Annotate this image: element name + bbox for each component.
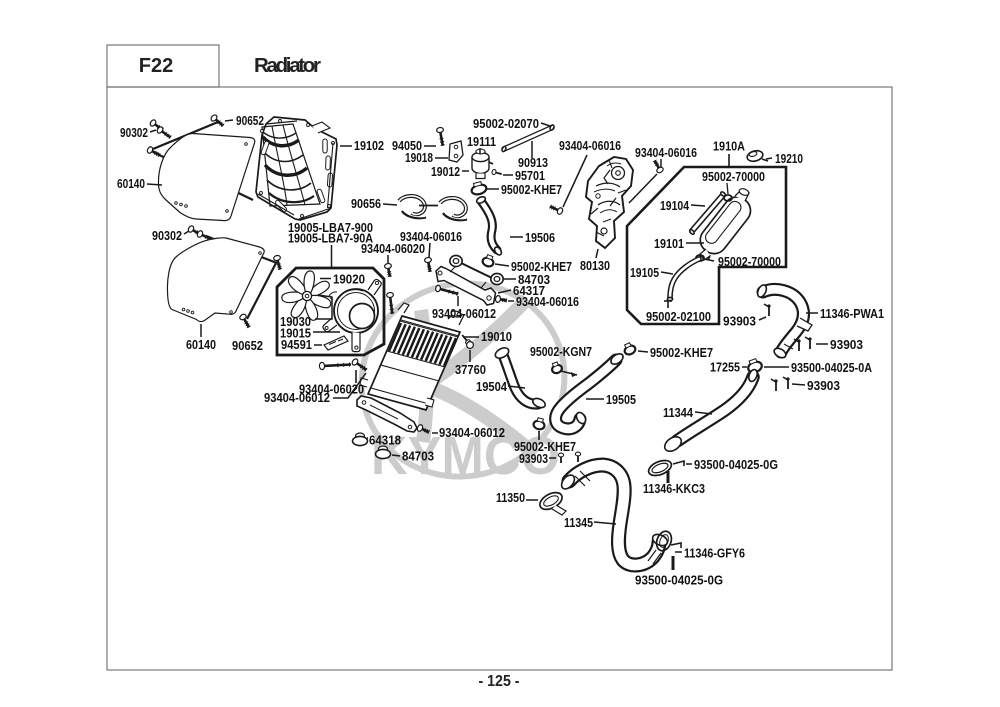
- svg-text:90302: 90302: [152, 228, 182, 243]
- svg-text:93500-04025-0A: 93500-04025-0A: [791, 360, 873, 375]
- svg-text:11344: 11344: [663, 405, 694, 420]
- svg-text:94591: 94591: [281, 337, 312, 352]
- svg-text:11345: 11345: [564, 515, 593, 530]
- svg-text:19102: 19102: [354, 138, 384, 153]
- svg-text:F22: F22: [139, 55, 173, 77]
- svg-text:93404-06012: 93404-06012: [439, 425, 505, 440]
- svg-text:11350: 11350: [496, 490, 525, 505]
- svg-text:95002-KGN7: 95002-KGN7: [530, 344, 592, 359]
- svg-text:11346-KKC3: 11346-KKC3: [643, 481, 705, 496]
- svg-text:90652: 90652: [236, 113, 264, 128]
- svg-text:17255: 17255: [710, 360, 740, 375]
- svg-text:19020: 19020: [333, 272, 365, 287]
- svg-text:19506: 19506: [525, 230, 555, 245]
- svg-text:93903: 93903: [830, 337, 863, 352]
- svg-text:- 125 -: - 125 -: [479, 673, 520, 690]
- svg-text:93500-04025-0G: 93500-04025-0G: [694, 457, 778, 472]
- svg-text:95002-KHE7: 95002-KHE7: [650, 345, 713, 360]
- svg-text:19104: 19104: [660, 198, 690, 213]
- svg-text:19210: 19210: [775, 151, 803, 166]
- svg-text:Radiator: Radiator: [254, 54, 321, 77]
- svg-text:64318: 64318: [369, 433, 401, 448]
- svg-text:90302: 90302: [120, 125, 148, 140]
- svg-text:19504: 19504: [476, 379, 508, 394]
- svg-text:95002-02070: 95002-02070: [473, 116, 539, 131]
- svg-text:95002-KHE7: 95002-KHE7: [501, 182, 562, 197]
- svg-text:19505: 19505: [606, 392, 636, 407]
- svg-text:93903: 93903: [723, 314, 756, 329]
- svg-text:93404-06020: 93404-06020: [361, 241, 425, 256]
- svg-text:93404-06012: 93404-06012: [432, 306, 496, 321]
- svg-text:60140: 60140: [117, 176, 145, 191]
- svg-text:19018: 19018: [405, 150, 433, 165]
- svg-text:93404-06016: 93404-06016: [559, 138, 621, 153]
- svg-text:93404-06012: 93404-06012: [264, 390, 330, 405]
- svg-text:93903: 93903: [807, 378, 840, 393]
- svg-text:19012: 19012: [431, 164, 460, 179]
- svg-text:93404-06016: 93404-06016: [516, 294, 579, 309]
- svg-text:19111: 19111: [467, 134, 496, 149]
- svg-text:95701: 95701: [515, 168, 545, 183]
- svg-text:95002-70000: 95002-70000: [702, 169, 765, 184]
- svg-text:95002-02100: 95002-02100: [646, 309, 711, 324]
- svg-text:80130: 80130: [580, 258, 610, 273]
- svg-text:19101: 19101: [654, 236, 684, 251]
- svg-text:95002-70000: 95002-70000: [718, 254, 781, 269]
- svg-text:90652: 90652: [232, 338, 263, 353]
- svg-text:1910A: 1910A: [713, 139, 746, 154]
- svg-text:93500-04025-0G: 93500-04025-0G: [635, 573, 723, 588]
- svg-text:11346-GFY6: 11346-GFY6: [684, 546, 745, 561]
- svg-text:93903: 93903: [519, 451, 548, 466]
- svg-text:84703: 84703: [402, 449, 434, 464]
- svg-text:60140: 60140: [186, 337, 216, 352]
- svg-text:90656: 90656: [351, 196, 381, 211]
- svg-text:19105: 19105: [630, 265, 659, 280]
- svg-text:19010: 19010: [481, 329, 512, 344]
- svg-text:93404-06016: 93404-06016: [635, 145, 697, 160]
- svg-text:11346-PWA1: 11346-PWA1: [820, 306, 884, 321]
- svg-text:37760: 37760: [455, 362, 486, 377]
